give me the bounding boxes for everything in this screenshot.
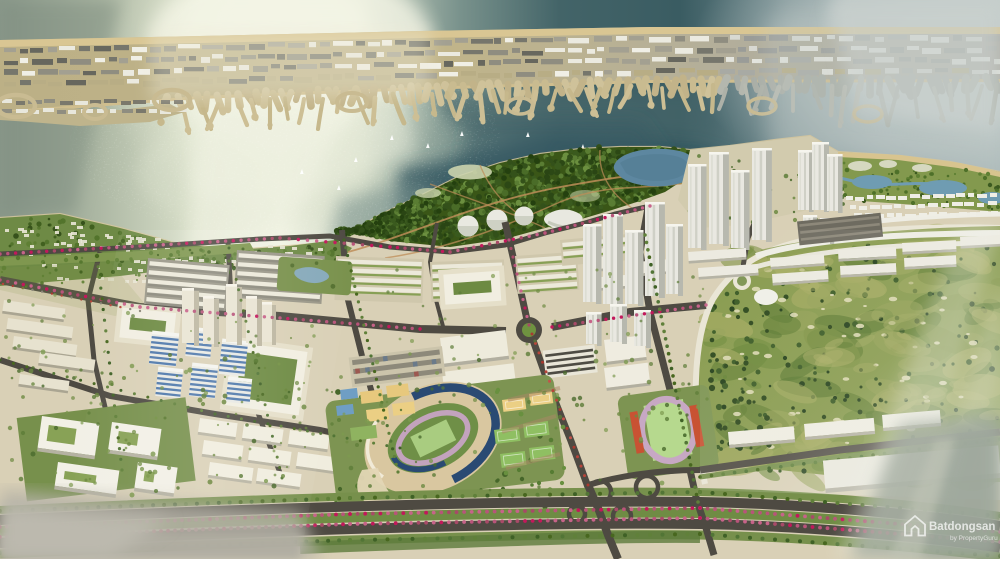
svg-text:by PropertyGuru: by PropertyGuru <box>950 535 998 542</box>
svg-text:Batdongsan: Batdongsan <box>929 521 995 533</box>
